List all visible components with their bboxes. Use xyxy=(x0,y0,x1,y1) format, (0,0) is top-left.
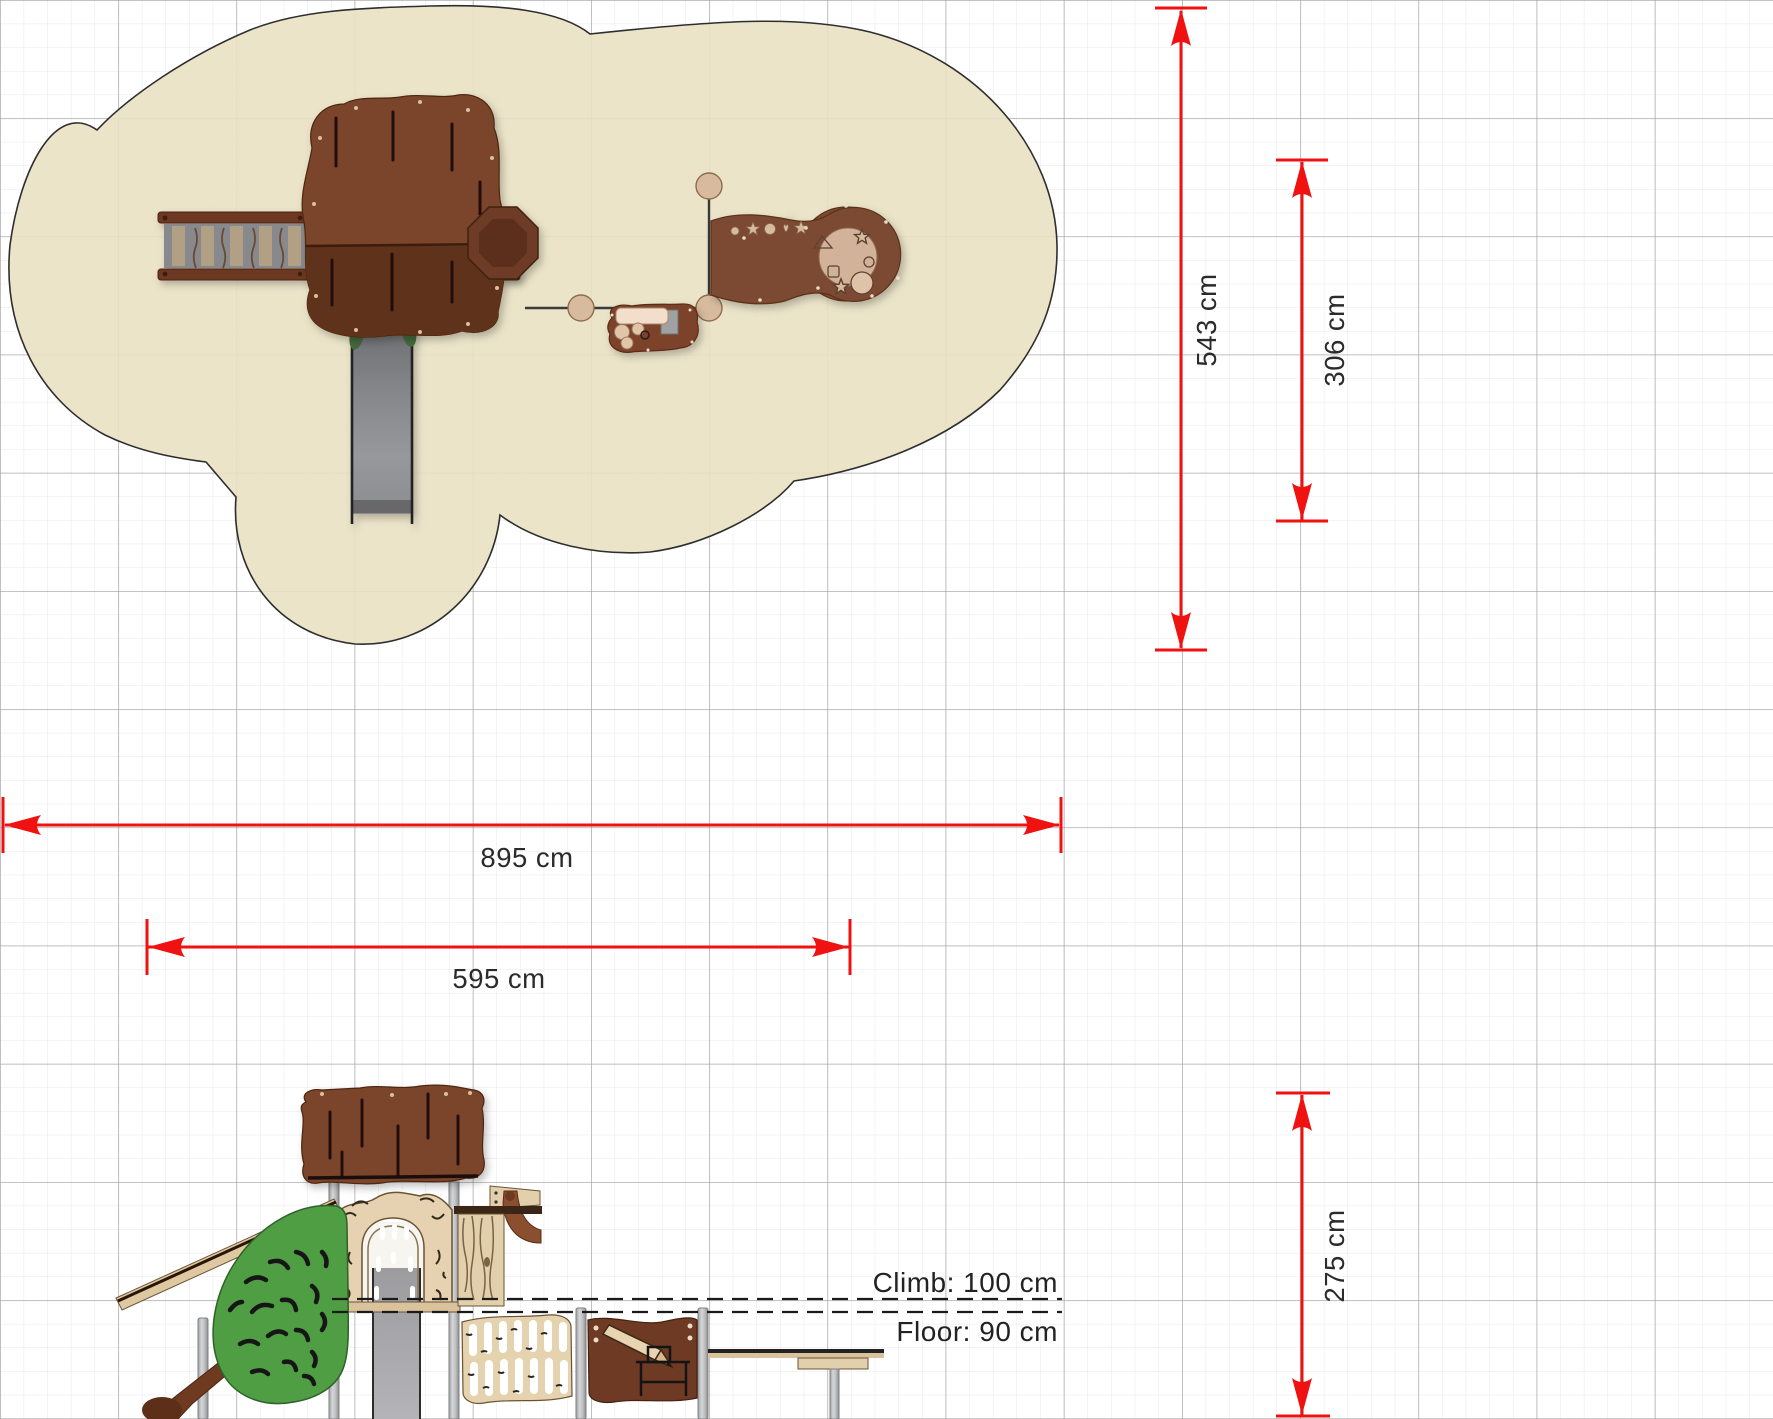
dim-label-275: 275 cm xyxy=(1319,1209,1350,1302)
dim-label-306: 306 cm xyxy=(1319,293,1350,386)
slide-chute xyxy=(353,318,411,514)
table-top xyxy=(616,308,668,324)
slide-end-cap xyxy=(353,500,411,513)
cap-bar xyxy=(454,1206,542,1214)
dim-label-543: 543 cm xyxy=(1191,273,1222,366)
plan-drawing: 543 cm 306 cm 275 cm xyxy=(0,0,1773,1419)
scope-pivot xyxy=(505,1191,515,1201)
sand-play-table[interactable] xyxy=(608,304,698,352)
floor-deck xyxy=(338,1302,460,1312)
tree-canopy-side-view[interactable] xyxy=(301,1085,484,1184)
knot xyxy=(484,1257,490,1267)
table-bench xyxy=(798,1358,868,1369)
floor-height-label: Floor: 90 cm xyxy=(896,1316,1058,1347)
dim-label-595: 595 cm xyxy=(452,963,545,994)
nest-octagon-inner xyxy=(479,219,527,267)
climb-height-label: Climb: 100 cm xyxy=(873,1267,1058,1298)
slide-top-view[interactable] xyxy=(347,316,419,524)
dim-label-895: 895 cm xyxy=(480,842,573,873)
net-climber-panel[interactable] xyxy=(462,1315,572,1404)
table-leg xyxy=(830,1369,839,1419)
plan-canvas: 543 cm 306 cm 275 cm xyxy=(0,0,1773,1419)
activity-panel[interactable] xyxy=(588,1318,697,1403)
